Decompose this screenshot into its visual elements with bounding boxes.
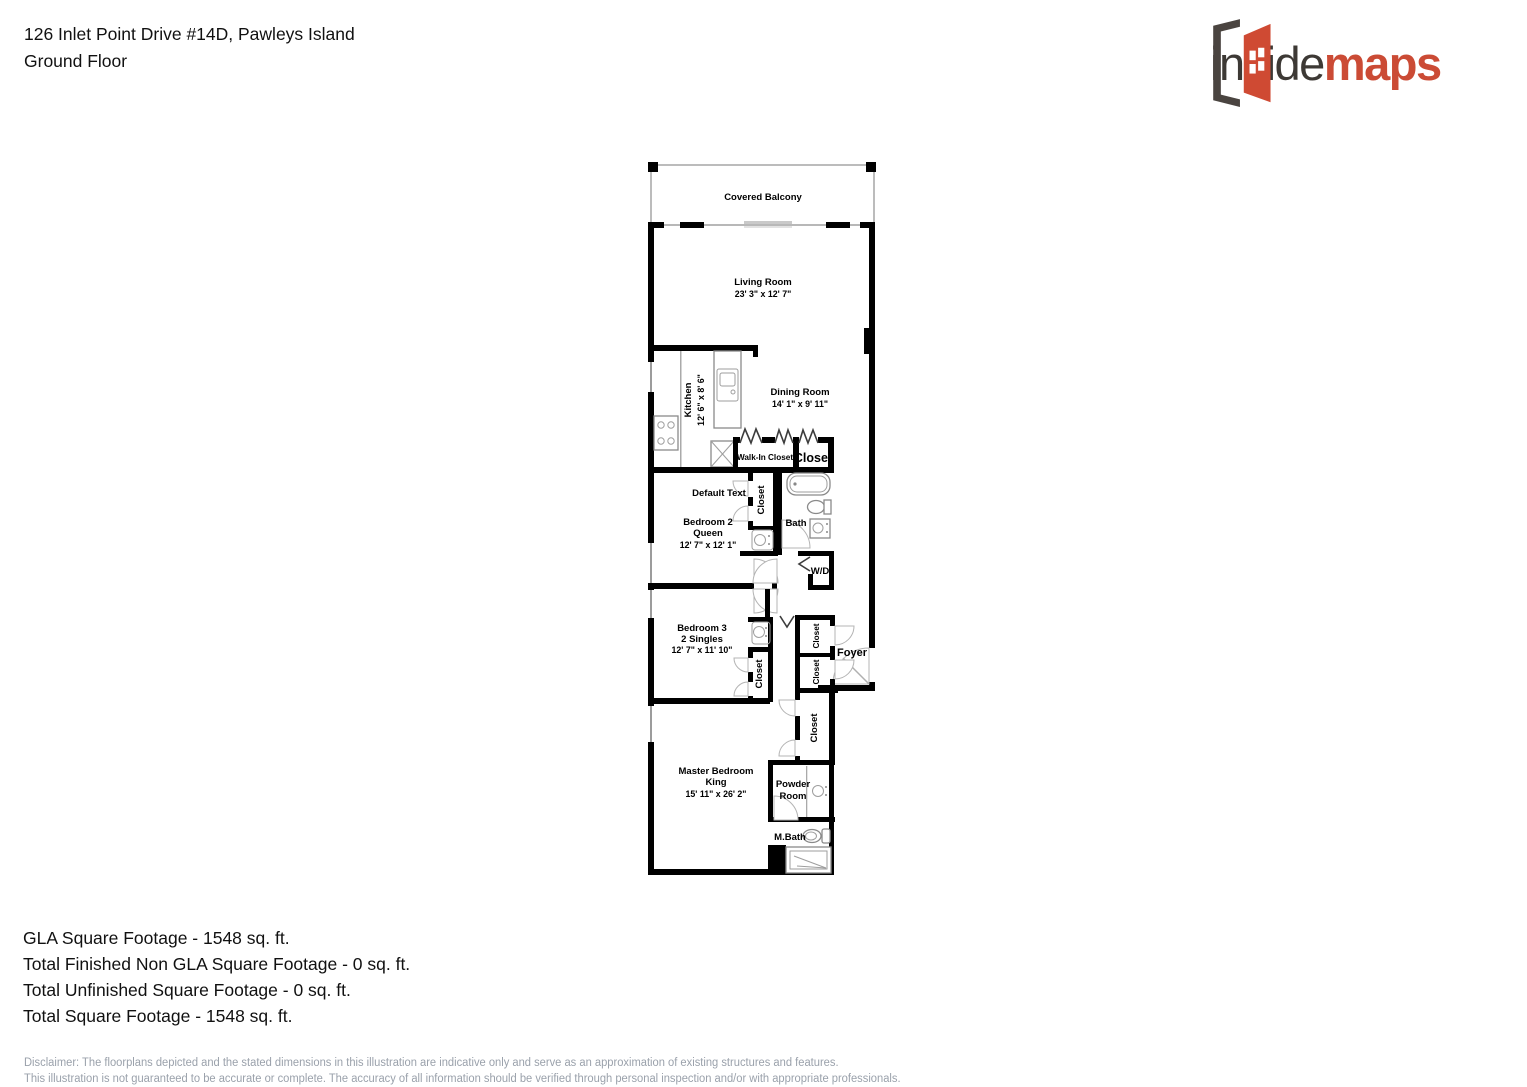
bedroom3-closet-door-swings <box>734 658 748 696</box>
room-dims-living-room: 23' 3" x 12' 7" <box>735 289 792 299</box>
total-square-footage: Total Square Footage - 1548 sq. ft. <box>23 1003 410 1029</box>
room-label-closet-foyer-b: Closet <box>812 659 821 684</box>
room-dims-bedroom3: 12' 7" x 11' 10" <box>672 645 733 655</box>
room-dims-master-bedroom: 15' 11" x 26' 2" <box>686 789 747 799</box>
unfinished-square-footage: Total Unfinished Square Footage - 0 sq. … <box>23 977 410 1003</box>
stove-icon <box>654 416 678 450</box>
bedroom2-vanity-sink-icon <box>752 530 773 550</box>
room-dims-bedroom2: 12' 7" x 12' 1" <box>680 540 737 550</box>
label-default-text: Default Text <box>692 488 747 499</box>
room-label-bedroom3: Bedroom 3 <box>677 623 727 634</box>
room-label-closet-foyer-a: Closet <box>812 623 821 648</box>
room-bed-master-bedroom: King <box>705 777 726 788</box>
master-toilet-icon <box>803 829 830 843</box>
room-label-walk-in-closet: Walk-In Closet <box>737 453 793 462</box>
bedroom3-vanity-sink-icon <box>752 622 770 644</box>
room-label-bath: Bath <box>785 518 806 529</box>
room-label-closet-bedroom3: Closet <box>754 659 765 689</box>
room-label-closet-bedroom2: Closet <box>756 485 767 515</box>
shower-icon <box>786 847 831 873</box>
room-label-powder-line2: Room <box>780 791 807 802</box>
room-label-wd: W/D <box>811 566 830 577</box>
room-label-master-bath: M.Bath <box>774 832 806 843</box>
left-outer-wall <box>648 222 654 875</box>
room-label-dining-room: Dining Room <box>770 387 829 398</box>
disclaimer-line1: Disclaimer: The floorplans depicted and … <box>24 1056 901 1072</box>
bedroom2-closet-door-swings <box>733 481 748 521</box>
room-label-powder-line1: Powder <box>776 779 811 790</box>
room-bed-bedroom3: 2 Singles <box>681 634 723 645</box>
square-footage-block: GLA Square Footage - 1548 sq. ft. Total … <box>23 925 410 1029</box>
non-gla-square-footage: Total Finished Non GLA Square Footage - … <box>23 951 410 977</box>
bifold-door-icons <box>740 429 818 443</box>
disclaimer-block: Disclaimer: The floorplans depicted and … <box>24 1056 901 1087</box>
room-label-closet-hall: Closet <box>794 451 833 465</box>
room-label-closet-hallway: Closet <box>809 713 820 743</box>
room-bed-bedroom2: Queen <box>693 528 723 539</box>
living-room-front-wall <box>648 221 875 228</box>
floorplan-drawing: Covered Balcony Living Room 23' 3" x 12'… <box>0 0 1527 1080</box>
wd-door-fold-icon <box>799 557 810 571</box>
room-label-foyer: Foyer <box>837 647 868 659</box>
room-label-covered-balcony: Covered Balcony <box>724 192 802 203</box>
room-dims-kitchen: 12' 6" x 8' 6" <box>696 374 706 426</box>
room-label-bedroom2: Bedroom 2 <box>683 517 733 528</box>
powder-room-sink-icon <box>813 786 828 797</box>
hall-bifold-icon <box>780 616 794 627</box>
kitchen-cabinet-icon <box>711 441 734 467</box>
room-dims-dining-room: 14' 1" x 9' 11" <box>772 399 828 409</box>
hall-closet-door-swings <box>779 700 795 756</box>
gla-square-footage: GLA Square Footage - 1548 sq. ft. <box>23 925 410 951</box>
disclaimer-line2: This illustration is not guaranteed to b… <box>24 1072 901 1087</box>
room-label-living-room: Living Room <box>734 277 792 288</box>
room-label-kitchen: Kitchen <box>683 382 694 417</box>
kitchen-sink-counter-icon <box>714 351 741 428</box>
room-label-master-bedroom: Master Bedroom <box>679 766 754 777</box>
